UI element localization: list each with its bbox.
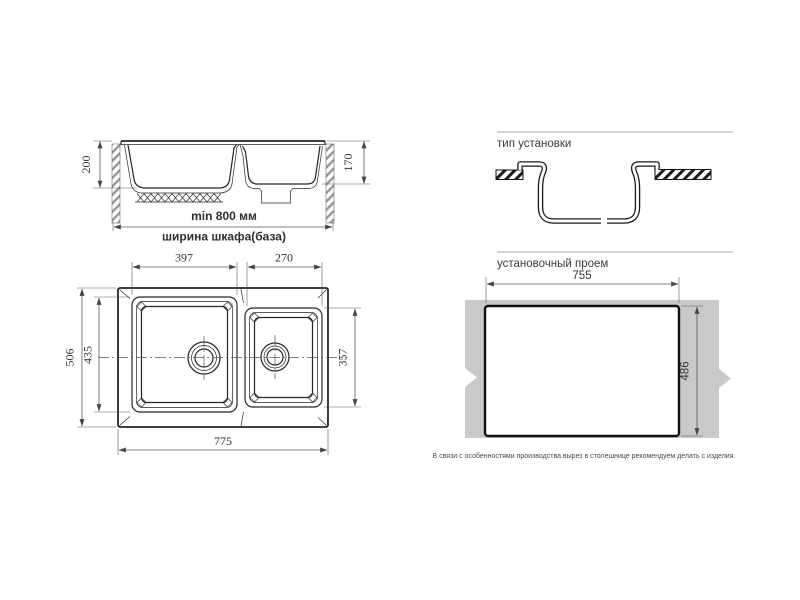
sink-clamp-profile-left [520,164,601,221]
cabinet-wall-right [326,144,334,223]
cutout-view: установочный проем 755 486 В связи с осо… [433,252,736,460]
centerlines [98,335,347,380]
countertop-edge-right [655,170,711,180]
dim-270-label: 270 [275,251,293,265]
drawing-svg: 200 170 min 800 мм ширина шкафа(база) ти… [0,0,800,600]
dim-755: 755 [486,270,679,303]
side-section-view: 200 170 min 800 мм ширина шкафа(база) [79,141,370,244]
dim-435: 435 [81,297,131,412]
sink-rim [121,141,325,145]
dim-775-label: 775 [214,434,232,448]
cutout-title: установочный проем [497,258,608,270]
dim-435-label: 435 [81,346,95,364]
break-notch-right [719,369,731,388]
dim-min-800: min 800 мм ширина шкафа(база) [113,209,333,244]
cabinet-width-caption: ширина шкафа(база) [162,230,286,244]
cutout-rect [485,306,679,436]
production-note: В связи с особенностями производства выр… [433,452,736,460]
top-view: 397 270 506 435 357 [63,251,362,456]
main-bowl-section [125,145,240,203]
installation-type-view: тип установки [496,132,733,221]
installation-type-title: тип установки [497,138,571,150]
sink-clamp-profile-right [607,164,657,221]
dim-506-label: 506 [63,349,77,367]
dim-775: 775 [118,429,328,455]
dim-200-label: 200 [79,156,93,174]
dim-170-label: 170 [341,154,355,172]
dim-397-label: 397 [175,251,193,265]
dim-270: 270 [247,251,322,307]
small-bowl-section [240,145,323,204]
cabinet-wall-left [112,144,120,223]
countertop-edge-left [496,170,523,180]
dim-357-label: 357 [336,349,350,367]
sink-technical-drawing: 200 170 min 800 мм ширина шкафа(база) ти… [0,0,800,600]
main-bowl-corner-facets [137,302,232,407]
dim-486-label: 486 [680,361,692,380]
dim-755-label: 755 [572,270,591,282]
main-bowl [132,297,237,412]
dim-min-800-label: min 800 мм [191,209,257,223]
